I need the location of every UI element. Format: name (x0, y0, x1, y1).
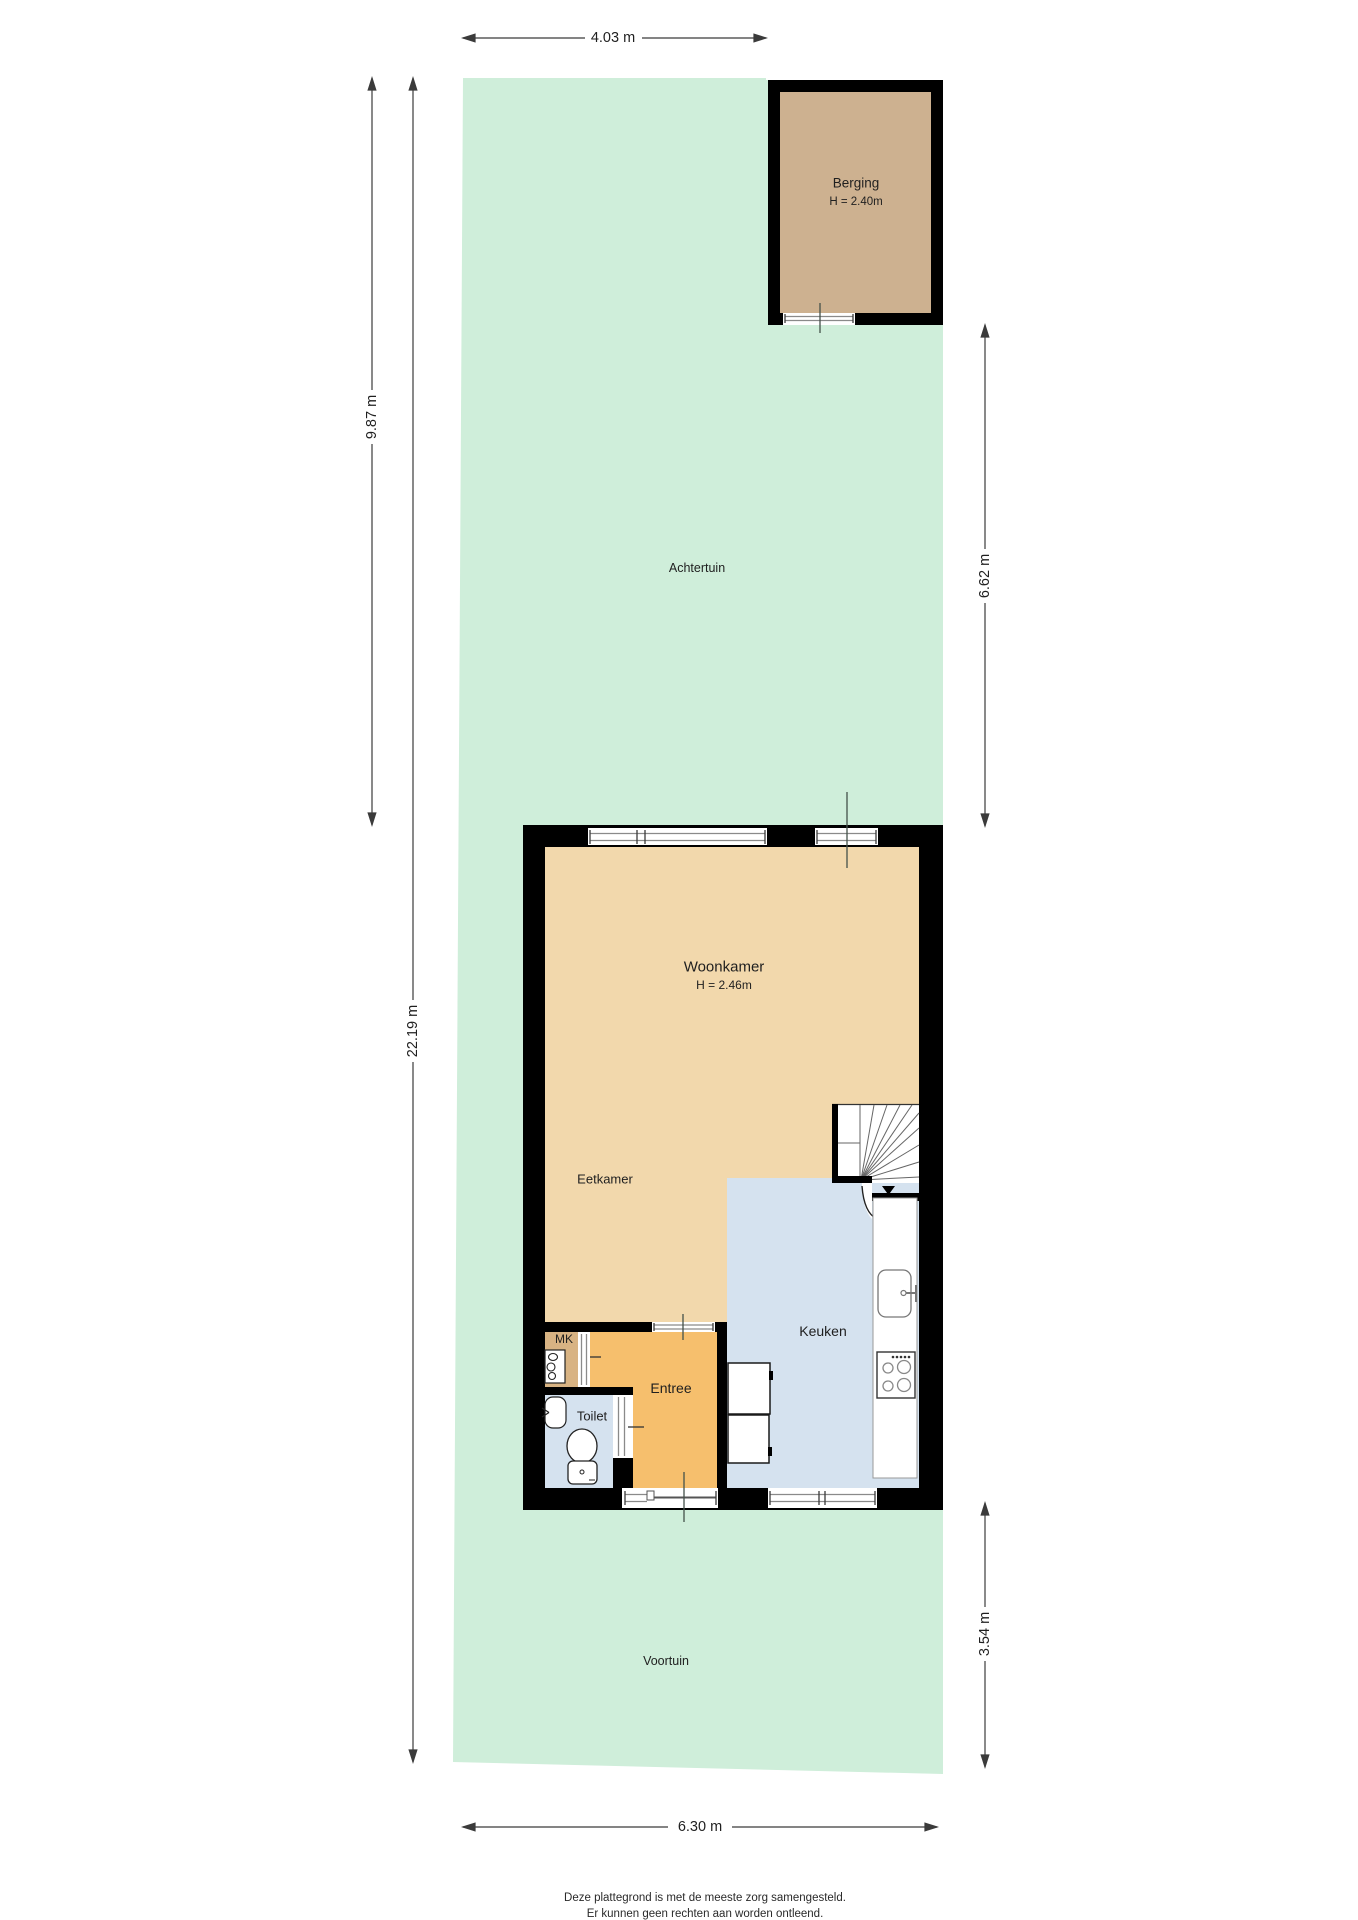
room-label-entree: Entree (650, 1380, 691, 1396)
wall-mk-toilet (523, 1387, 633, 1395)
wall-entree-keuken (717, 1322, 727, 1488)
window-back-large (588, 828, 767, 845)
room-height-berging: H = 2.40m (829, 196, 882, 208)
room-label-mk: MK (555, 1332, 573, 1346)
room-label-keuken: Keuken (799, 1323, 846, 1339)
dim-top-width: 4.03 m (588, 30, 638, 46)
window-front-kitchen (768, 1488, 877, 1508)
room-label-eetkamer: Eetkamer (577, 1172, 633, 1187)
dim-back-garden-depth: 9.87 m (364, 392, 380, 442)
room-label-achtertuin: Achtertuin (669, 561, 725, 575)
room-height-woonkamer: H = 2.46m (696, 978, 752, 992)
wall-toilet-entree (613, 1458, 633, 1488)
floorplan-canvas: Berging H = 2.40m Achtertuin Woonkamer H… (0, 0, 1358, 1920)
room-label-toilet: Toilet (577, 1409, 607, 1424)
interior-window-entree (652, 1322, 715, 1332)
mk-door-opening (578, 1332, 590, 1387)
dim-total-depth: 22.19 m (405, 1002, 421, 1060)
front-door-opening (622, 1488, 718, 1508)
room-label-woonkamer: Woonkamer (684, 959, 765, 976)
disclaimer-line1: Deze plattegrond is met de meeste zorg s… (564, 1892, 846, 1904)
dim-front-garden-depth: 3.54 m (977, 1609, 993, 1659)
room-label-berging: Berging (833, 176, 880, 191)
room-label-voortuin: Voortuin (643, 1654, 689, 1668)
disclaimer-line2: Er kunnen geen rechten aan worden ontlee… (587, 1908, 824, 1920)
window-back-small (815, 828, 878, 845)
toilet-door-opening (613, 1395, 633, 1458)
dim-bottom-width: 6.30 m (675, 1819, 725, 1835)
dim-right-back: 6.62 m (977, 551, 993, 601)
berging-door-opening (783, 313, 855, 325)
